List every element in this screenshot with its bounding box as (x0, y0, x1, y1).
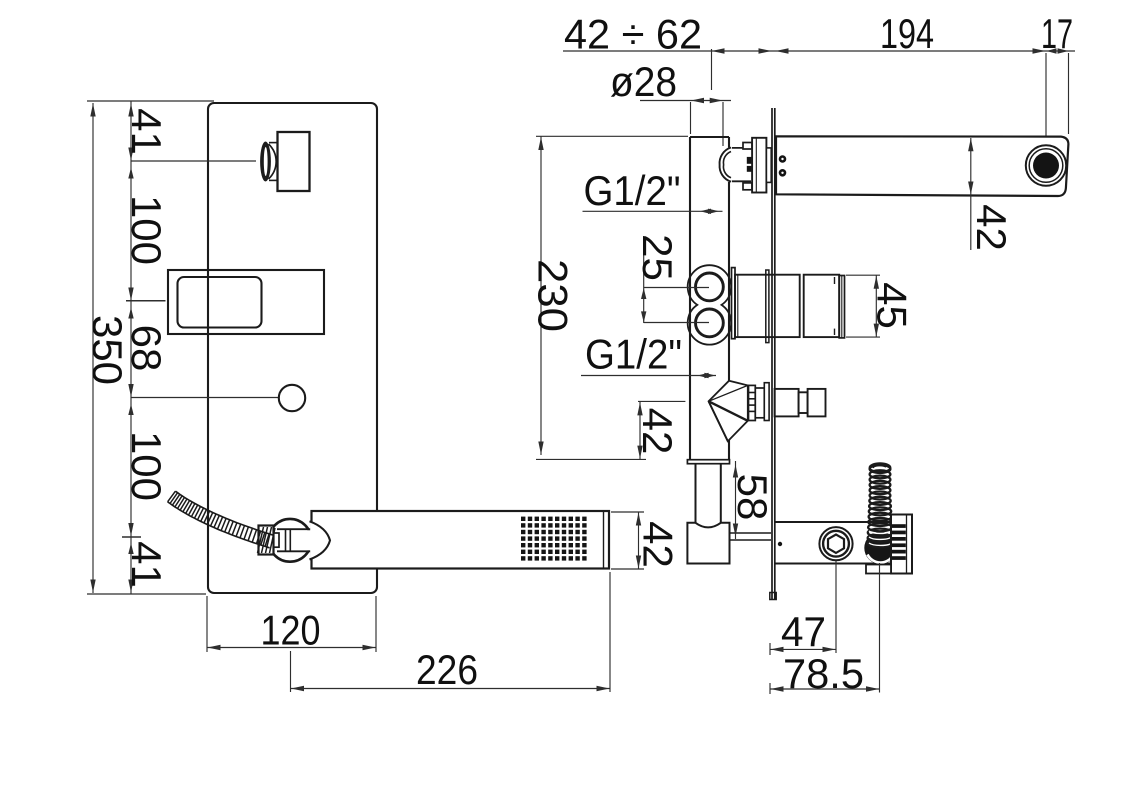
svg-text:100: 100 (123, 195, 170, 265)
svg-text:194: 194 (880, 10, 934, 57)
svg-text:17: 17 (1041, 10, 1073, 57)
svg-text:42 ÷ 62: 42 ÷ 62 (564, 11, 702, 58)
svg-text:226: 226 (416, 646, 478, 693)
svg-text:68: 68 (123, 325, 170, 372)
svg-text:45: 45 (869, 282, 916, 329)
svg-text:G1/2": G1/2" (585, 331, 682, 378)
svg-text:41: 41 (123, 108, 170, 155)
svg-text:58: 58 (729, 474, 776, 521)
svg-text:100: 100 (123, 431, 170, 501)
svg-text:41: 41 (123, 541, 170, 588)
svg-text:78.5: 78.5 (783, 650, 864, 697)
svg-text:120: 120 (261, 607, 321, 654)
svg-text:47: 47 (781, 608, 826, 655)
svg-text:25: 25 (634, 234, 681, 281)
svg-text:ø28: ø28 (610, 58, 677, 105)
svg-text:230: 230 (530, 259, 577, 332)
svg-text:42: 42 (635, 521, 682, 568)
svg-text:G1/2": G1/2" (584, 167, 681, 214)
svg-text:42: 42 (634, 408, 681, 455)
svg-text:42: 42 (968, 204, 1015, 251)
